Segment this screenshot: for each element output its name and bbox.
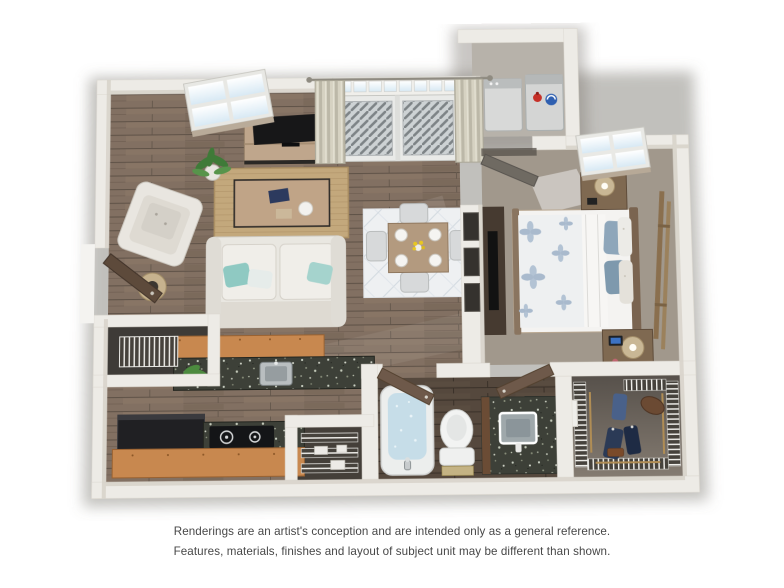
pantry [301, 433, 358, 473]
dining-area [363, 203, 474, 298]
sofa [206, 236, 346, 328]
wall-art [463, 213, 479, 312]
entry-stoop [80, 244, 95, 323]
wire-shelf-top [624, 379, 667, 390]
disclaimer-line-1: Renderings are an artist's conception an… [0, 522, 784, 542]
curtain-panel-right [455, 79, 484, 162]
wire-shelf-right [666, 381, 681, 466]
balcony-railing [403, 101, 454, 156]
closet-sign [607, 448, 623, 456]
wire-shelf-bottom [587, 458, 668, 470]
dining-table [388, 223, 448, 273]
washer [484, 79, 522, 131]
balcony-railing [342, 101, 393, 156]
coffee-table [234, 179, 329, 227]
vanity [481, 396, 557, 474]
disclaimer-line-2: Features, materials, finishes and layout… [0, 542, 784, 562]
dresser-with-tv [482, 207, 506, 335]
disclaimer: Renderings are an artist's conception an… [0, 522, 784, 563]
balcony-entrance [306, 75, 494, 164]
floral-duvet [517, 215, 586, 328]
kitchen-sink [260, 361, 292, 385]
kitchen-cabinets [112, 448, 304, 478]
bed [512, 207, 642, 335]
curtain-panel-left [315, 80, 345, 163]
bedroom-window [576, 127, 651, 181]
tub-faucet [404, 457, 410, 470]
french-doors [337, 95, 459, 162]
floorplan-rendering [61, 21, 731, 521]
coat-closet-wire-rack [119, 336, 177, 367]
doorway-lintel [481, 148, 536, 156]
floorplan-scene [61, 21, 731, 521]
dryer [525, 74, 564, 130]
bath-mat [442, 466, 473, 475]
